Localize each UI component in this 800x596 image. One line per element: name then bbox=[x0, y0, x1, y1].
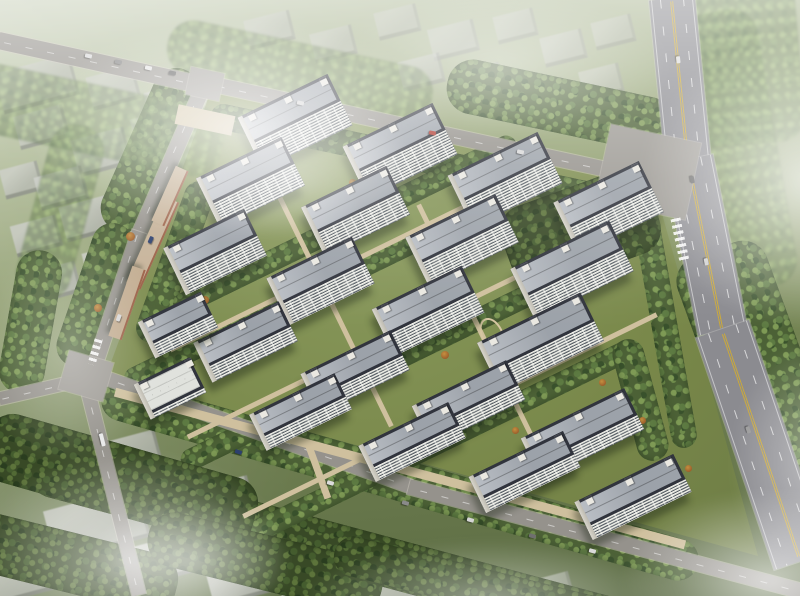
fog-patch bbox=[330, 0, 670, 140]
autumn-tree bbox=[441, 351, 449, 359]
fog-patch bbox=[640, 30, 800, 330]
autumn-tree bbox=[512, 427, 519, 434]
fog-patch bbox=[180, 120, 420, 240]
fog-patch bbox=[620, 490, 800, 596]
fog-patch bbox=[90, 500, 290, 596]
autumn-tree bbox=[599, 379, 606, 386]
car bbox=[401, 500, 409, 505]
aerial-residential-rendering bbox=[0, 0, 800, 596]
fog-patch bbox=[0, 230, 160, 470]
autumn-tree bbox=[685, 465, 692, 472]
